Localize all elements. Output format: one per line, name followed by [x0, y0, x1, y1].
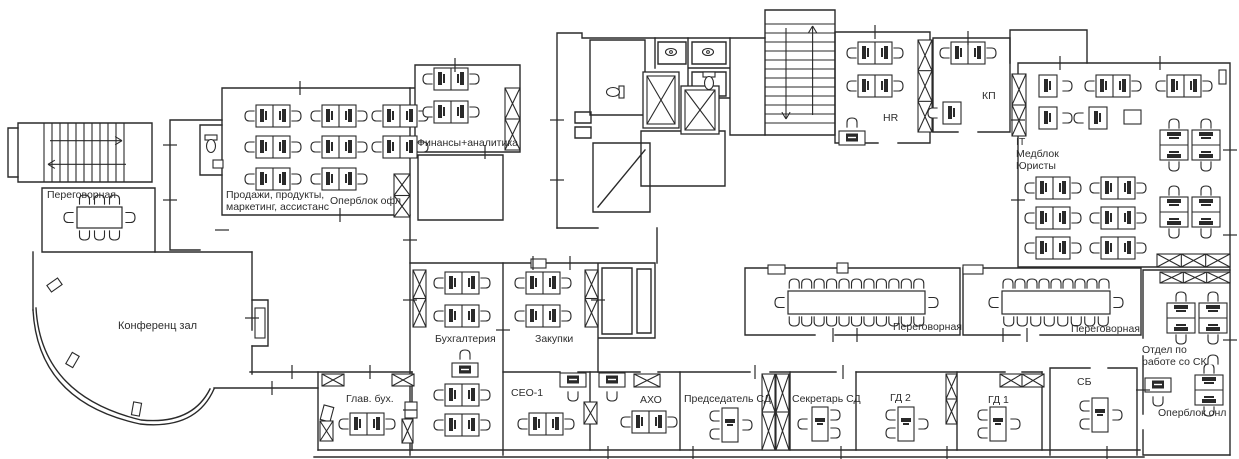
exec-desk-icon	[978, 407, 1020, 441]
room-label-operblok-ofl: Оперблок офл	[330, 195, 401, 207]
desk-cluster-icon	[434, 272, 490, 294]
room-label-sales: Продажи, продукты, маркетинг, ассистанс	[226, 189, 329, 213]
single-desk-icon	[1074, 107, 1107, 129]
desk-cluster-icon	[1085, 75, 1141, 97]
stairs-icon	[765, 24, 835, 123]
desk-cluster-icon	[515, 272, 571, 294]
exec-desk-icon	[1080, 398, 1122, 432]
printer-table-icon	[599, 373, 625, 401]
room-label-hr: HR	[883, 112, 898, 124]
hatch-icon	[776, 374, 789, 450]
desk-cluster-icon	[1025, 177, 1081, 199]
desk-cluster-icon	[245, 105, 301, 127]
hatch-icon	[1012, 74, 1026, 136]
desk-cluster-vertical-icon	[1167, 292, 1195, 344]
desk-cluster-icon	[1090, 207, 1146, 229]
printer-table-icon	[1145, 378, 1171, 406]
hatch-icon	[320, 421, 333, 441]
floor-plan-drawing	[0, 0, 1239, 459]
room-label-sekretar-sd: Секретарь СД	[792, 393, 861, 405]
hatch-icon	[1157, 254, 1230, 267]
desk-cluster-icon	[339, 413, 395, 435]
desk-cluster-icon	[847, 75, 903, 97]
room-label-meeting-1: Переговорная	[893, 321, 962, 333]
room-label-glav-buh: Глав. бух.	[346, 393, 394, 405]
room-label-aho: АХО	[640, 394, 662, 406]
desk-cluster-icon	[434, 384, 490, 406]
hatch-icon	[322, 374, 344, 386]
hatch-icon	[392, 374, 414, 386]
desk-cluster-icon	[311, 168, 367, 190]
floor-plan: Переговорная Продажи, продукты, маркетин…	[0, 0, 1239, 459]
hatch-icon	[584, 402, 597, 424]
sink-icon	[703, 49, 714, 56]
room-label-meeting-2: Переговорная	[1071, 323, 1140, 335]
desk-cluster-icon	[1090, 237, 1146, 259]
exec-desk-icon	[710, 408, 752, 442]
desk-cluster-icon	[1156, 75, 1212, 97]
hatch-icon	[946, 374, 957, 424]
room-label-gd-2: ГД 2	[890, 392, 911, 404]
desk-cluster-vertical-icon	[1199, 292, 1227, 344]
desk-cluster-icon	[372, 105, 428, 127]
desk-cluster-icon	[1090, 177, 1146, 199]
desk-cluster-vertical-icon	[1160, 186, 1188, 238]
room-label-meeting-nw: Переговорная	[47, 189, 116, 201]
desk-cluster-icon	[847, 42, 903, 64]
meeting-table-icon	[64, 195, 135, 240]
room-label-sb: СБ	[1077, 376, 1091, 388]
room-label-predsedatel-sd: Председатель СД	[684, 393, 771, 405]
room-label-accounting: Бухгалтерия	[435, 333, 496, 345]
desk-cluster-icon	[515, 305, 571, 327]
desk-cluster-icon	[434, 414, 490, 436]
room-label-otdel-sk: Отдел по работе со СК	[1142, 344, 1207, 368]
room-label-finance: Финансы+аналитика	[417, 137, 518, 149]
desk-cluster-icon	[434, 305, 490, 327]
room-label-it-med-jur: IT Медблок Юристы	[1016, 136, 1059, 172]
elevator-icon	[643, 72, 679, 128]
stairs-icon	[44, 123, 126, 182]
desk-cluster-vertical-icon	[1160, 119, 1188, 171]
room-label-kp: КП	[982, 90, 996, 102]
desk-cluster-icon	[1025, 237, 1081, 259]
desk-cluster-icon	[518, 413, 574, 435]
hatch-icon	[402, 419, 413, 443]
toilet-icon	[607, 86, 625, 98]
desk-cluster-vertical-icon	[1192, 186, 1220, 238]
desk-cluster-icon	[245, 136, 301, 158]
desk-cluster-icon	[423, 68, 479, 90]
hatch-icon	[762, 374, 775, 450]
desk-cluster-icon	[1025, 207, 1081, 229]
desk-cluster-icon	[311, 136, 367, 158]
desk-cluster-icon	[621, 411, 677, 433]
sink-icon	[666, 49, 677, 56]
room-label-operblok-onl: Оперблок онл	[1158, 407, 1226, 419]
room-label-gd-1: ГД 1	[988, 394, 1009, 406]
printer-table-icon	[839, 118, 865, 145]
single-desk-icon	[1039, 107, 1072, 129]
exec-desk-icon	[886, 407, 928, 441]
toilet-icon	[205, 135, 217, 153]
hatch-icon	[1160, 272, 1230, 283]
toilet-icon	[703, 72, 715, 90]
desk-cluster-icon	[423, 101, 479, 123]
room-label-ceo-1: СЕО-1	[511, 387, 543, 399]
desk-cluster-icon	[940, 42, 996, 64]
single-desk-icon	[1039, 75, 1072, 97]
meeting-table-icon	[775, 279, 938, 326]
hatch-icon	[413, 270, 426, 327]
hatch-icon	[918, 40, 932, 132]
room-label-conference: Конференц зал	[118, 320, 197, 332]
printer-table-icon	[452, 350, 478, 377]
desk-cluster-icon	[245, 168, 301, 190]
desk-cluster-vertical-icon	[1192, 119, 1220, 171]
room-label-procurement: Закупки	[535, 333, 573, 345]
desk-cluster-icon	[311, 105, 367, 127]
elevator-icon	[681, 86, 719, 134]
hatch-icon	[634, 374, 660, 387]
meeting-table-icon	[989, 279, 1123, 326]
hatch-icon	[585, 270, 598, 327]
exec-desk-icon	[798, 407, 840, 441]
printer-table-icon	[560, 373, 586, 401]
hatch-icon	[1000, 374, 1044, 387]
